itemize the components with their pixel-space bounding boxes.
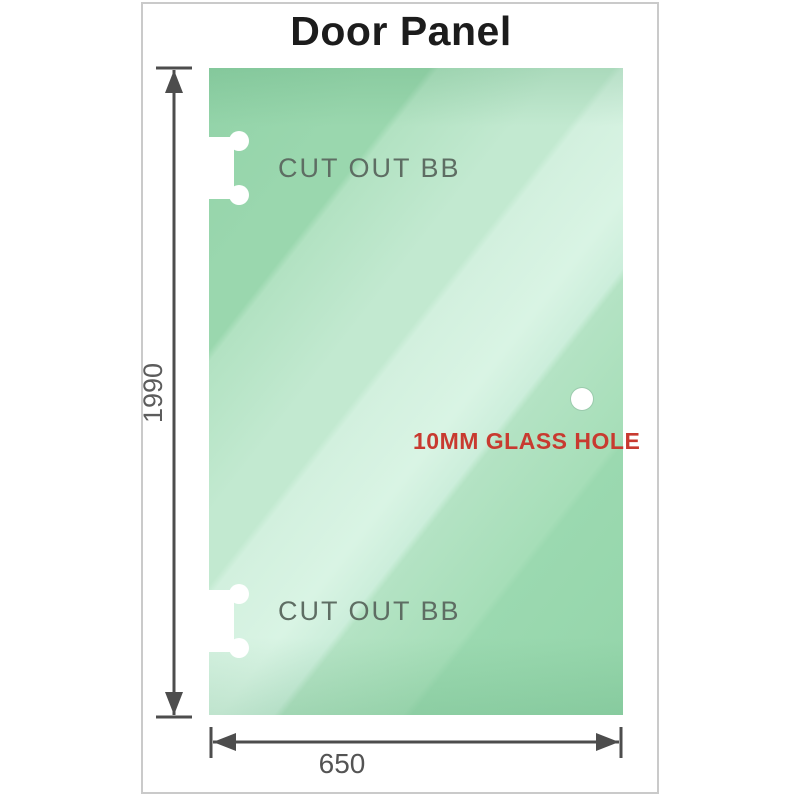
glass-hole-icon — [571, 388, 593, 410]
width-dimension-label: 650 — [292, 749, 392, 779]
door-panel-diagram: Door Panel CUT OUT BB CUT OUT BB 10MM GL… — [0, 0, 800, 800]
page-title: Door Panel — [141, 8, 661, 55]
cutout-bottom-label: CUT OUT BB — [278, 595, 461, 627]
height-dimension-label: 1990 — [138, 333, 166, 453]
hinge-cutout-top-icon — [208, 129, 254, 207]
hinge-cutout-bottom-icon — [208, 582, 254, 660]
cutout-top-label: CUT OUT BB — [278, 152, 461, 184]
glass-hole-label: 10MM GLASS HOLE — [413, 427, 640, 455]
